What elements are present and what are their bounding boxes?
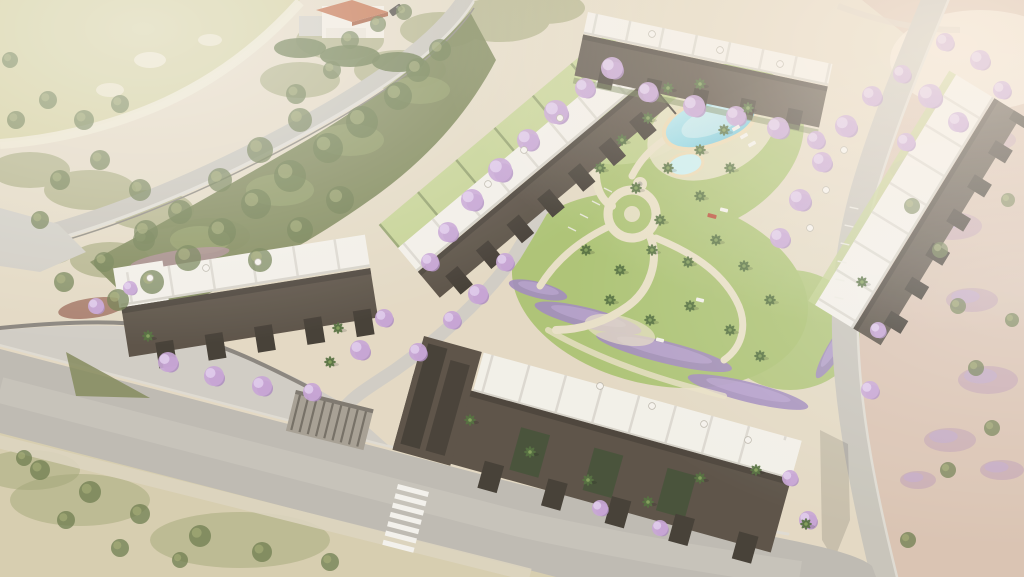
sunlight-haze: [0, 0, 1024, 577]
aerial-render: [0, 0, 1024, 577]
scene-svg: [0, 0, 1024, 577]
